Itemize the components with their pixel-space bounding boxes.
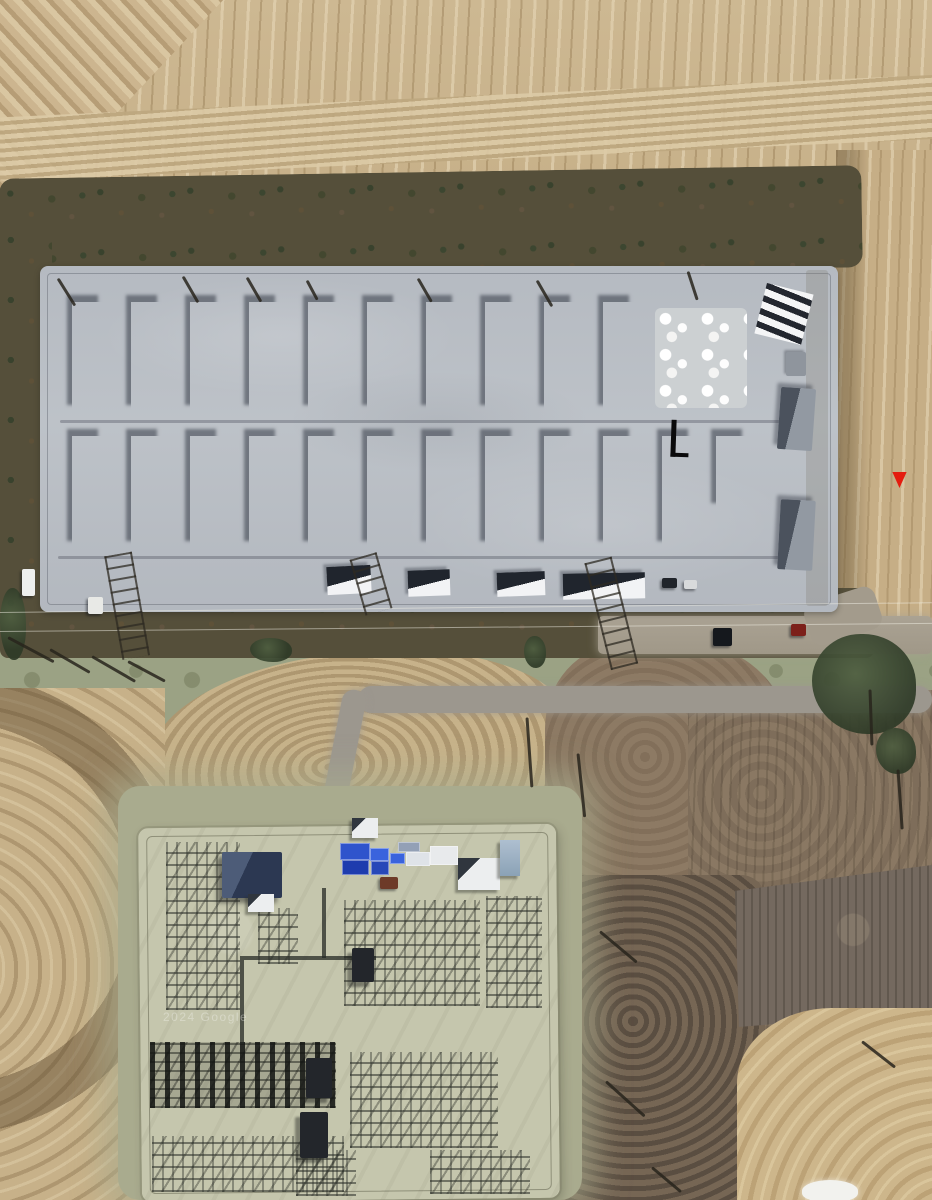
vehicle [684, 580, 697, 589]
dark-gray-building [777, 387, 816, 451]
transformer [352, 948, 374, 982]
vegetation-border-top [0, 165, 863, 281]
storage-building [190, 436, 221, 548]
bus-line [322, 888, 326, 958]
tire-track-line [58, 556, 802, 559]
white-tank-blob [802, 1180, 858, 1200]
storage-building [716, 436, 747, 510]
storage-building [249, 436, 280, 548]
control-building [222, 852, 282, 898]
pallet-crate-stack [340, 843, 370, 860]
tree-clump [0, 588, 26, 660]
white-shed [352, 818, 378, 838]
map-watermark: 2024 Google [163, 1010, 248, 1024]
storage-building [485, 436, 516, 548]
dark-gray-building [777, 499, 816, 571]
vehicle [88, 597, 103, 614]
white-shed [248, 894, 274, 912]
storage-building [603, 302, 634, 412]
vehicle [662, 578, 677, 588]
storage-building [308, 436, 339, 548]
blue-container [500, 840, 520, 876]
storage-building [426, 436, 457, 548]
substation-vehicle [380, 877, 398, 889]
flat-roof-building [408, 569, 451, 596]
vehicle [22, 569, 35, 596]
storage-building [426, 302, 457, 412]
aerial-map: 2024 Google [0, 0, 932, 1200]
construction-area [655, 308, 747, 408]
gray-equipment-unit [786, 352, 806, 376]
pallet-crate-stack [342, 860, 369, 875]
storage-building [131, 302, 162, 412]
storage-building [72, 302, 103, 412]
vehicle [713, 628, 732, 646]
bus-line [240, 960, 244, 1044]
pallet-crate-stack [398, 842, 420, 852]
field-darkgray-bottom-right [735, 865, 932, 1027]
storage-building [72, 436, 103, 548]
storage-building [367, 436, 398, 548]
transformer [306, 1058, 332, 1098]
storage-building [308, 302, 339, 412]
storage-building [544, 302, 575, 412]
vehicle [791, 624, 806, 636]
field-gold-bottom-right [737, 1008, 932, 1200]
pallet-crate-stack [390, 853, 405, 864]
storage-building [544, 436, 575, 548]
pallet-crate-stack [430, 846, 458, 865]
tree-clump [250, 638, 292, 662]
pallet-crate-stack [406, 852, 430, 866]
tree-clump [524, 636, 546, 668]
storage-building [367, 302, 398, 412]
storage-building [603, 436, 634, 548]
tree-clump [876, 728, 916, 774]
storage-building [485, 302, 516, 412]
lattice-structure [430, 1150, 530, 1194]
storage-building [249, 302, 280, 412]
lattice-structure [350, 1052, 498, 1148]
transformer [300, 1112, 328, 1158]
pallet-crate-stack [371, 861, 389, 875]
storage-building [190, 302, 221, 412]
pallet-crate-stack [370, 848, 389, 861]
lattice-structure [486, 896, 542, 1008]
white-shed [458, 858, 500, 890]
storage-building [131, 436, 162, 548]
black-l-annotation [670, 420, 689, 458]
flat-roof-building [497, 571, 546, 597]
